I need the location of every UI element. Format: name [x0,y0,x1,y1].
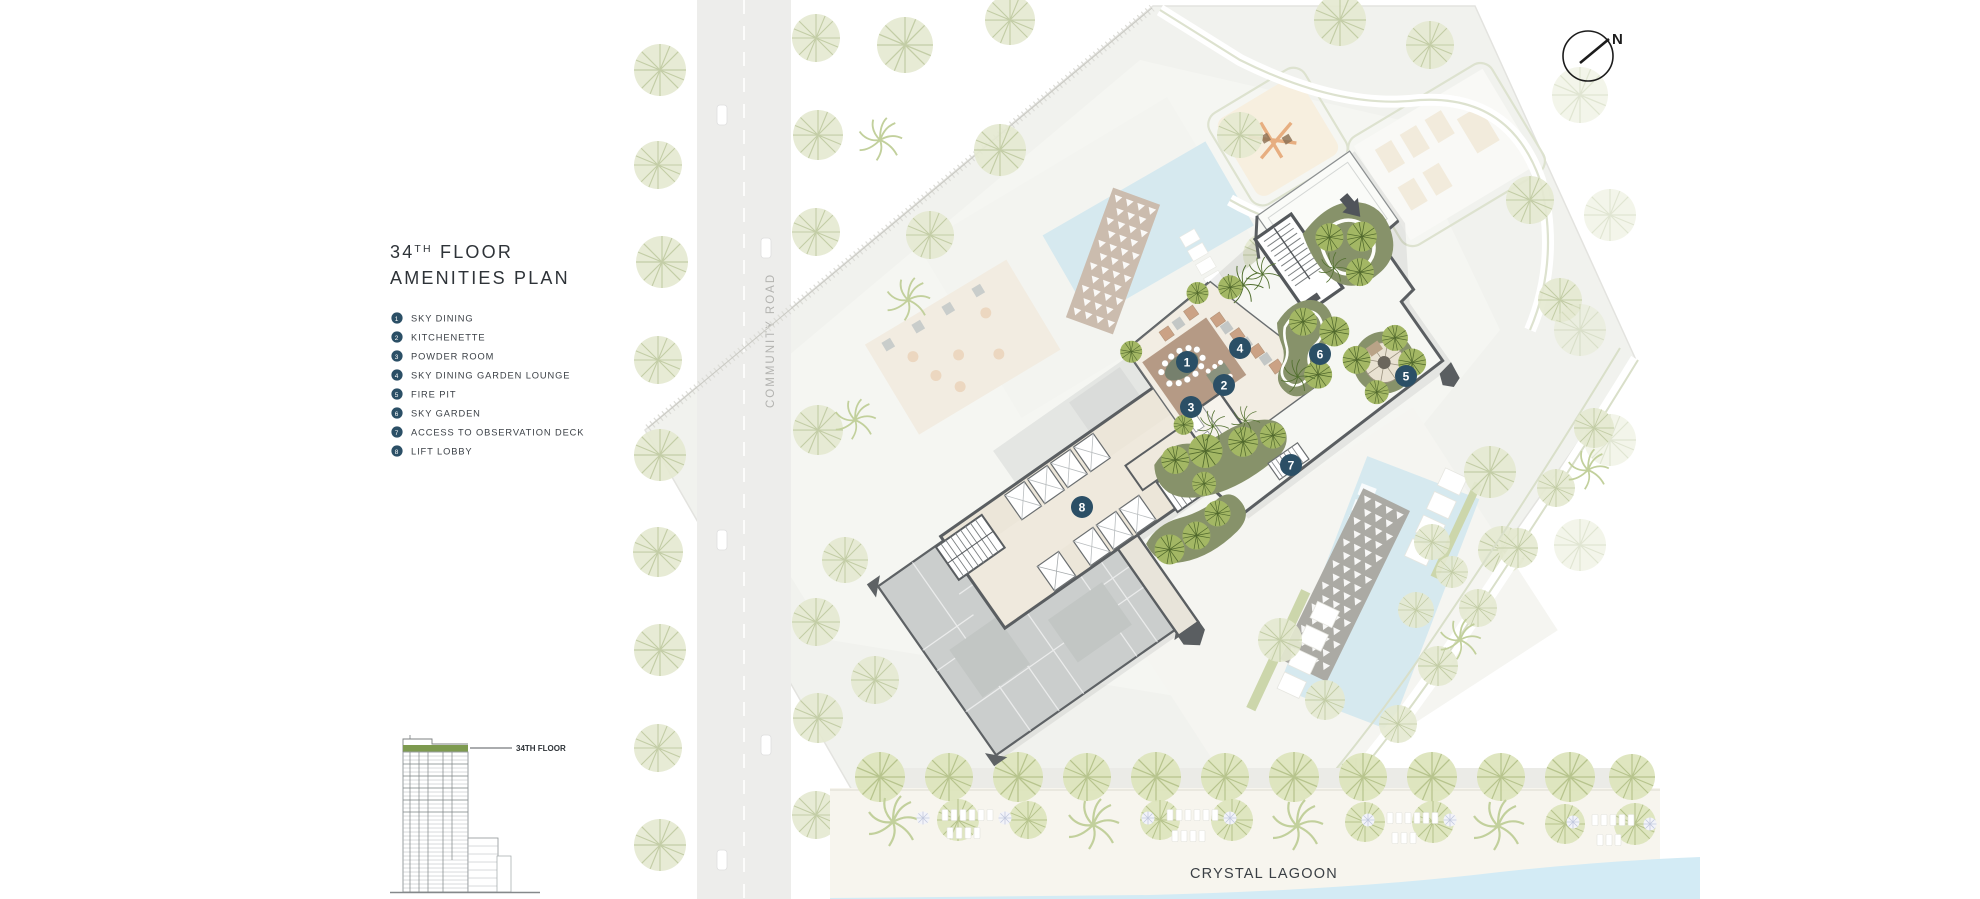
svg-text:ACCESS TO OBSERVATION DECK: ACCESS TO OBSERVATION DECK [411,428,584,438]
svg-text:6: 6 [1317,348,1324,362]
svg-text:4: 4 [1237,342,1244,356]
svg-text:POWDER ROOM: POWDER ROOM [411,352,494,362]
svg-text:AMENITIES PLAN: AMENITIES PLAN [390,268,570,288]
svg-text:FIRE PIT: FIRE PIT [411,390,456,400]
svg-text:KITCHENETTE: KITCHENETTE [411,333,485,343]
svg-text:6: 6 [395,411,399,418]
svg-text:3: 3 [1188,401,1195,415]
svg-text:8: 8 [395,449,399,456]
svg-text:34TH FLOOR: 34TH FLOOR [390,242,513,262]
svg-text:34TH FLOOR: 34TH FLOOR [516,744,566,753]
svg-text:CRYSTAL LAGOON: CRYSTAL LAGOON [1190,866,1338,882]
svg-text:1: 1 [1184,356,1191,370]
svg-text:5: 5 [1403,370,1410,384]
svg-text:SKY GARDEN: SKY GARDEN [411,409,481,419]
svg-text:COMMUNITY ROAD: COMMUNITY ROAD [765,273,777,408]
svg-text:7: 7 [1288,459,1295,473]
svg-text:4: 4 [395,373,399,380]
svg-text:LIFT LOBBY: LIFT LOBBY [411,447,473,457]
svg-text:8: 8 [1079,501,1086,515]
svg-text:N: N [1612,31,1623,48]
svg-text:SKY DINING GARDEN LOUNGE: SKY DINING GARDEN LOUNGE [411,371,570,381]
svg-text:2: 2 [395,335,399,342]
svg-text:1: 1 [395,316,399,323]
svg-text:3: 3 [395,354,399,361]
svg-text:5: 5 [395,392,399,399]
svg-text:SKY DINING: SKY DINING [411,314,474,324]
svg-text:2: 2 [1221,379,1228,393]
svg-text:7: 7 [395,430,399,437]
